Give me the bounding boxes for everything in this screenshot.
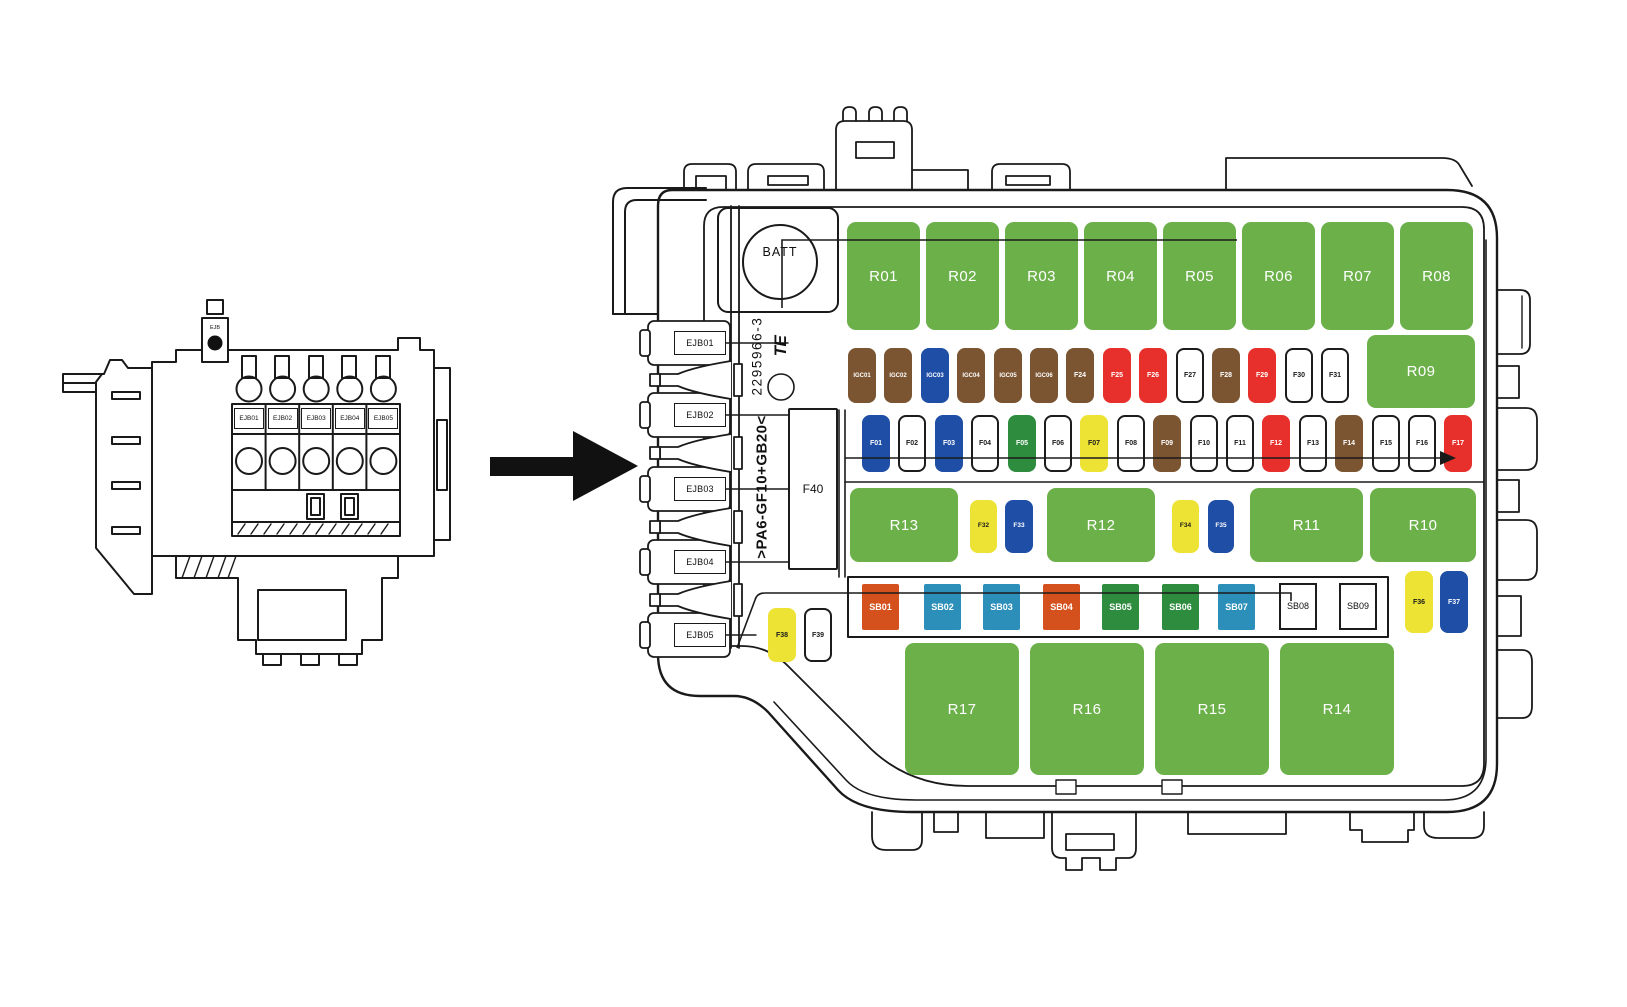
fuse-f10: F10 bbox=[1190, 415, 1218, 472]
sb-fuse-sb07: SB07 bbox=[1218, 584, 1255, 630]
relay-r05: R05 bbox=[1163, 222, 1236, 330]
fuse-igc04: IGC04 bbox=[957, 348, 985, 403]
fuse-f11: F11 bbox=[1226, 415, 1254, 472]
fuse-f32: F32 bbox=[970, 500, 997, 553]
relay-r11: R11 bbox=[1250, 488, 1363, 562]
fuse-f40: F40 bbox=[788, 408, 838, 570]
relay-r02: R02 bbox=[926, 222, 999, 330]
relay-r07: R07 bbox=[1321, 222, 1394, 330]
fuse-f17: F17 bbox=[1444, 415, 1472, 472]
fuse-f08: F08 bbox=[1117, 415, 1145, 472]
fuse-f36: F36 bbox=[1405, 571, 1433, 633]
fuse-f33: F33 bbox=[1005, 500, 1033, 553]
relay-r14: R14 bbox=[1280, 643, 1394, 775]
fuse-f29: F29 bbox=[1248, 348, 1276, 403]
relay-r09: R09 bbox=[1367, 335, 1475, 408]
fuse-f26: F26 bbox=[1139, 348, 1167, 403]
sb-fuse-sb09: SB09 bbox=[1339, 583, 1377, 630]
relay-r06: R06 bbox=[1242, 222, 1315, 330]
fuse-f04: F04 bbox=[971, 415, 999, 472]
relay-r13: R13 bbox=[850, 488, 958, 562]
sb-fuse-sb06: SB06 bbox=[1162, 584, 1199, 630]
fuse-f38: F38 bbox=[768, 608, 796, 662]
sb-fuse-sb05: SB05 bbox=[1102, 584, 1139, 630]
sb-fuse-sb01: SB01 bbox=[862, 584, 899, 630]
fuse-f24: F24 bbox=[1066, 348, 1094, 403]
fuse-f02: F02 bbox=[898, 415, 926, 472]
fuse-f13: F13 bbox=[1299, 415, 1327, 472]
fuse-f05: F05 bbox=[1008, 415, 1036, 472]
fuse-f06: F06 bbox=[1044, 415, 1072, 472]
relay-r04: R04 bbox=[1084, 222, 1157, 330]
fuse-f28: F28 bbox=[1212, 348, 1240, 403]
relay-r17: R17 bbox=[905, 643, 1019, 775]
relay-r08: R08 bbox=[1400, 222, 1473, 330]
fuse-igc02: IGC02 bbox=[884, 348, 912, 403]
fuse-f12: F12 bbox=[1262, 415, 1290, 472]
fuse-f03: F03 bbox=[935, 415, 963, 472]
fuse-f16: F16 bbox=[1408, 415, 1436, 472]
relay-r16: R16 bbox=[1030, 643, 1144, 775]
fuse-f34: F34 bbox=[1172, 500, 1199, 553]
fusebox-diagram-canvas: BATT 2295966-3 >PA6-GF10+GB20< TE EJB EJ… bbox=[0, 0, 1627, 1007]
sb-fuse-sb03: SB03 bbox=[983, 584, 1020, 630]
sb-fuse-sb04: SB04 bbox=[1043, 584, 1080, 630]
fuse-f31: F31 bbox=[1321, 348, 1349, 403]
fuse-f01: F01 bbox=[862, 415, 890, 472]
fuse-f37: F37 bbox=[1440, 571, 1468, 633]
fuse-f09: F09 bbox=[1153, 415, 1181, 472]
fuse-f07: F07 bbox=[1080, 415, 1108, 472]
sb-fuse-sb08: SB08 bbox=[1279, 583, 1317, 630]
relay-r12: R12 bbox=[1047, 488, 1155, 562]
fuse-f25: F25 bbox=[1103, 348, 1131, 403]
sb-fuse-sb02: SB02 bbox=[924, 584, 961, 630]
fuse-igc01: IGC01 bbox=[848, 348, 876, 403]
fuse-igc03: IGC03 bbox=[921, 348, 949, 403]
fuse-f15: F15 bbox=[1372, 415, 1400, 472]
fuse-f14: F14 bbox=[1335, 415, 1363, 472]
fuse-f27: F27 bbox=[1176, 348, 1204, 403]
fuse-layer: R01R02R03R04R05R06R07R08R09IGC01IGC02IGC… bbox=[0, 0, 1627, 1007]
fuse-f35: F35 bbox=[1208, 500, 1234, 553]
relay-r03: R03 bbox=[1005, 222, 1078, 330]
fuse-igc05: IGC05 bbox=[994, 348, 1022, 403]
relay-r15: R15 bbox=[1155, 643, 1269, 775]
relay-r01: R01 bbox=[847, 222, 920, 330]
relay-r10: R10 bbox=[1370, 488, 1476, 562]
fuse-igc06: IGC06 bbox=[1030, 348, 1058, 403]
fuse-f39: F39 bbox=[804, 608, 832, 662]
fuse-f30: F30 bbox=[1285, 348, 1313, 403]
